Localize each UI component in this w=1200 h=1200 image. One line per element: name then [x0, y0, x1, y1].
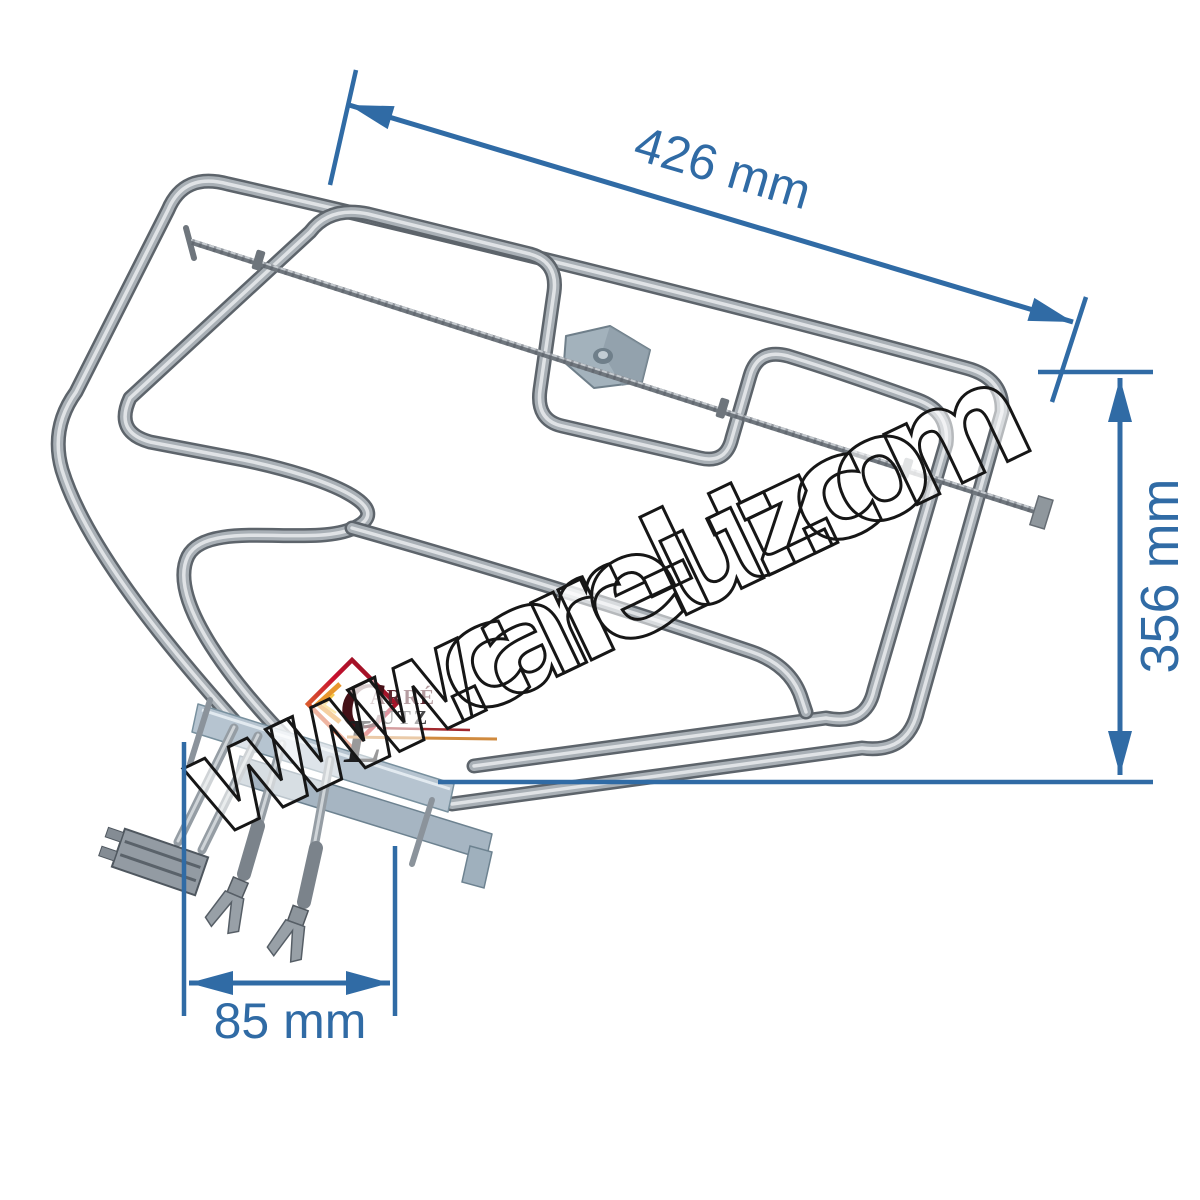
product-photo: C ARRÉ L UTZ www.carre-lutz.com 426 mm 3…	[0, 0, 1200, 1200]
terminal-sleeve	[304, 848, 316, 902]
fork-connector	[265, 902, 317, 965]
dimension-label-spacing: 85 mm	[214, 993, 367, 1049]
fork-connector	[203, 873, 257, 937]
terminal-block	[97, 824, 208, 896]
mounting-bracket	[564, 326, 650, 388]
rod-end-plate	[1030, 496, 1053, 529]
dimension-label-height: 356 mm	[1130, 478, 1190, 673]
dimension-label-width: 426 mm	[628, 115, 817, 220]
extension-line	[330, 70, 356, 185]
extension-line	[1052, 297, 1086, 402]
heating-element-image: C ARRÉ L UTZ www.carre-lutz.com 426 mm 3…	[0, 0, 1200, 1200]
